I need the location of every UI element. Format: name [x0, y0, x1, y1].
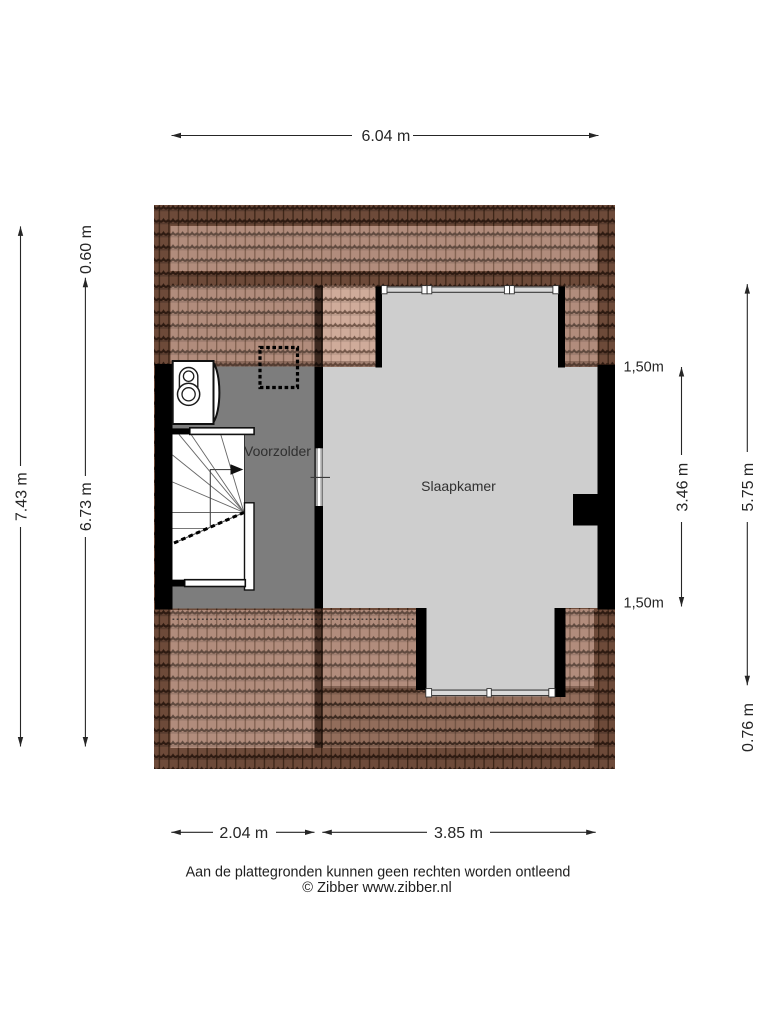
svg-text:6.73 m: 6.73 m	[78, 482, 95, 531]
svg-text:2.04 m: 2.04 m	[219, 825, 268, 842]
svg-text:3.85 m: 3.85 m	[434, 825, 483, 842]
svg-text:7.43 m: 7.43 m	[13, 472, 30, 521]
svg-text:1,50m: 1,50m	[624, 596, 664, 612]
svg-text:Aan de plattegronden kunnen ge: Aan de plattegronden kunnen geen rechten…	[186, 865, 571, 881]
svg-text:© Zibber www.zibber.nl: © Zibber www.zibber.nl	[302, 880, 451, 896]
svg-text:5.75 m: 5.75 m	[740, 463, 757, 512]
svg-text:3.46 m: 3.46 m	[674, 463, 691, 512]
svg-text:Voorzolder: Voorzolder	[244, 443, 311, 459]
svg-text:0.60 m: 0.60 m	[78, 225, 95, 274]
svg-text:1,50m: 1,50m	[624, 359, 664, 375]
svg-text:Slaapkamer: Slaapkamer	[421, 478, 496, 494]
svg-text:0.76 m: 0.76 m	[740, 703, 757, 752]
svg-text:6.04 m: 6.04 m	[361, 128, 410, 145]
